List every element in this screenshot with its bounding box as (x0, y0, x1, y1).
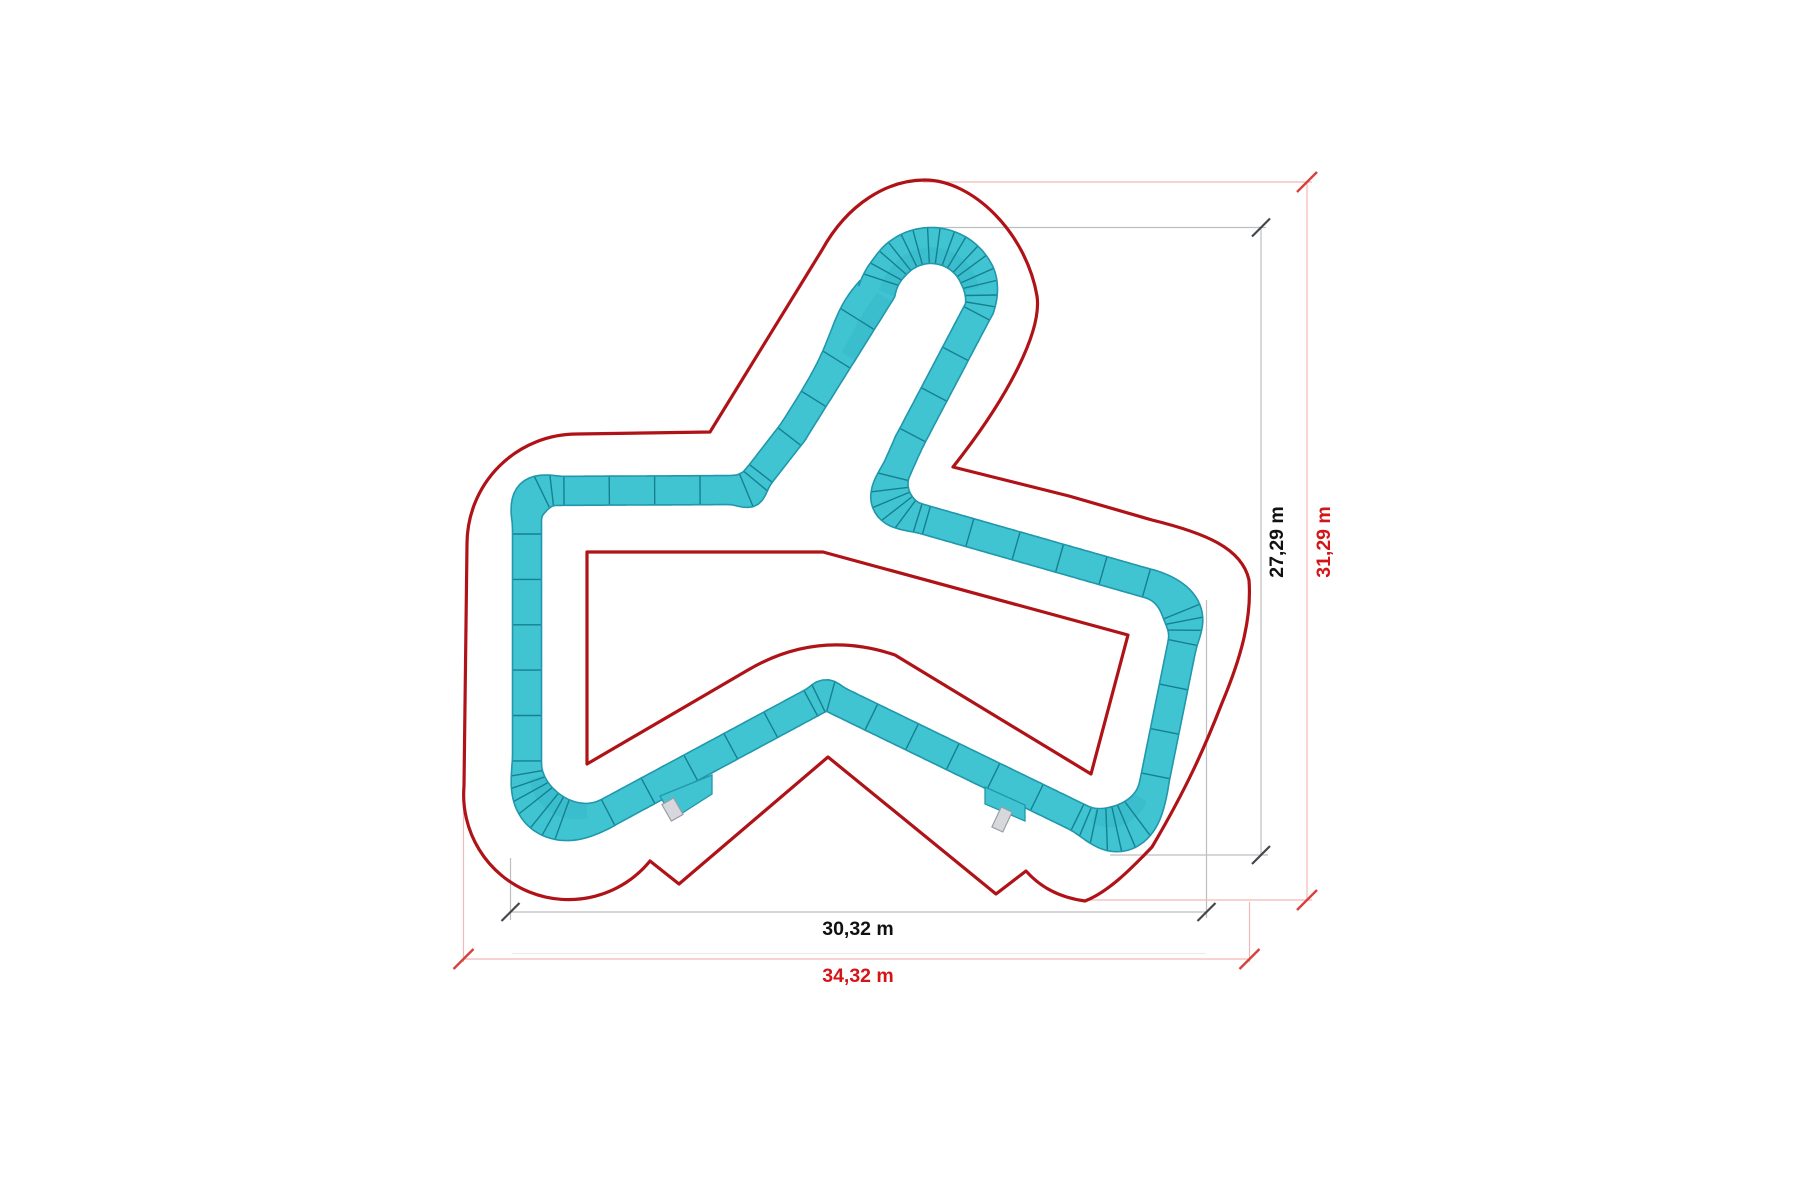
svg-text:27,29 m: 27,29 m (1266, 506, 1288, 578)
svg-text:34,32 m: 34,32 m (822, 965, 894, 987)
svg-text:31,29 m: 31,29 m (1313, 506, 1335, 578)
svg-text:30,32 m: 30,32 m (822, 918, 894, 940)
